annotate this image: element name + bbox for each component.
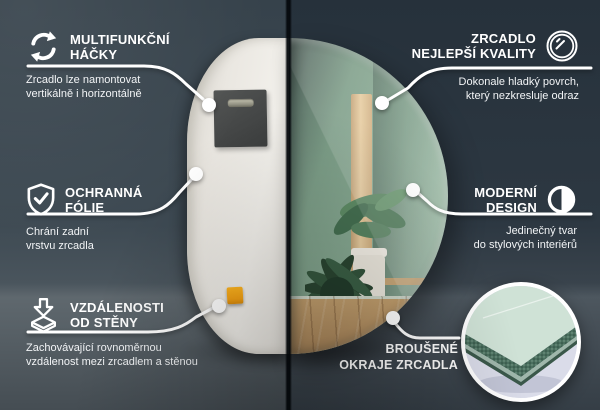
callout-title: VZDÁLENOSTI OD STĚNY <box>70 300 164 330</box>
callout-design: MODERNÍ DESIGN Jedinečný tvar do stylový… <box>357 184 577 252</box>
callout-desc: Zrcadlo lze namontovat vertikálně i hori… <box>26 73 241 101</box>
infographic-canvas: MULTIFUNKČNÍ HÁČKY Zrcadlo lze namontova… <box>0 0 600 410</box>
shield-check-icon <box>26 183 56 216</box>
callout-wall-distance: VZDÁLENOSTI OD STĚNY Zachovávající rovno… <box>26 297 256 369</box>
edge-detail-inset <box>461 282 581 402</box>
glass-edge-photo <box>465 286 577 398</box>
callout-title: ZRCADLO NEJLEPŠÍ KVALITY <box>412 31 536 61</box>
distance-arrow-icon <box>26 297 61 332</box>
callout-desc: Chrání zadní vrstvu zrcadla <box>26 225 241 253</box>
callout-desc: Jedinečný tvar do stylových interiérů <box>357 224 577 252</box>
callout-title: OCHRANNÁ FÓLIE <box>65 185 142 215</box>
mirror-shine-icon <box>545 29 579 63</box>
callout-edges-label: BROUŠENÉ OKRAJE ZRCADLA <box>339 341 458 373</box>
divider-line <box>285 0 292 410</box>
half-circle-design-icon <box>546 184 577 215</box>
callout-desc: Dokonale hladký povrch, který nezkresluj… <box>354 75 579 103</box>
callout-hooks: MULTIFUNKČNÍ HÁČKY Zrcadlo lze namontova… <box>26 29 241 101</box>
rotate-arrows-icon <box>26 29 61 64</box>
callout-desc: Zachovávající rovnoměrnou vzdálenost mez… <box>26 341 256 369</box>
callout-title: MODERNÍ DESIGN <box>474 185 537 215</box>
callout-title: MULTIFUNKČNÍ HÁČKY <box>70 32 170 62</box>
callout-protective-film: OCHRANNÁ FÓLIE Chrání zadní vrstvu zrcad… <box>26 183 241 253</box>
callout-quality: ZRCADLO NEJLEPŠÍ KVALITY Dokonale hladký… <box>354 29 579 103</box>
